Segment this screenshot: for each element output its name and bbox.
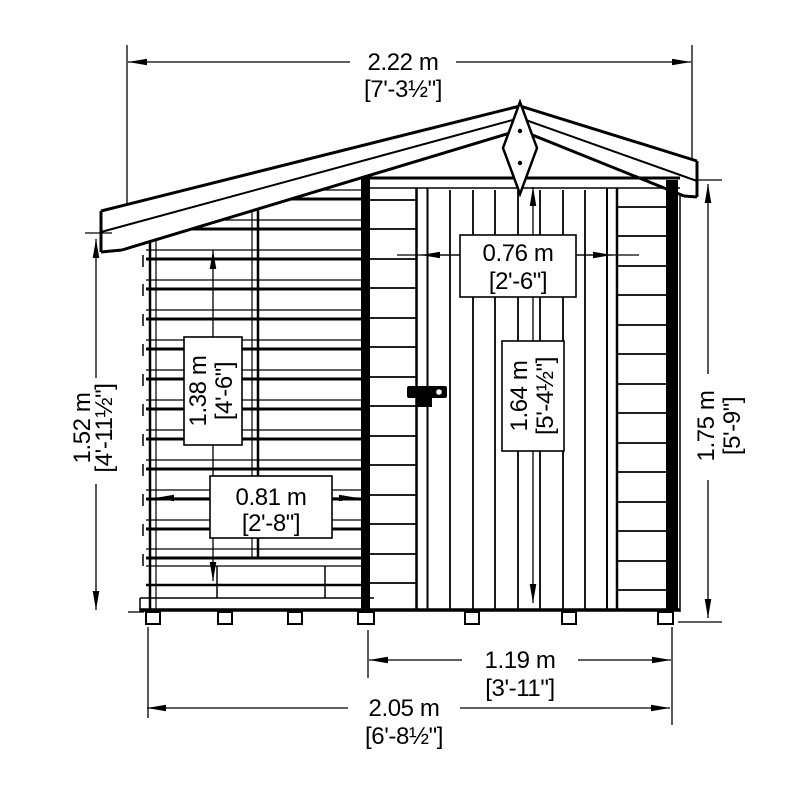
label-front-width-imperial: [3'-11"] (485, 675, 555, 702)
label-left-opening-height-metric: 1.38 m (185, 356, 212, 427)
label-left-opening-height-imperial: [4'-6"] (211, 362, 238, 420)
shed-technical-drawing: 2.22 m [7'-3½"] 1.52 m [4'-11½"] 1.38 m … (0, 0, 800, 800)
label-front-width-metric: 1.19 m (485, 647, 556, 674)
label-base-width-imperial: [6'-8½"] (365, 723, 443, 750)
label-base-width-metric: 2.05 m (369, 695, 440, 722)
label-overall-width-imperial: [7'-3½"] (364, 76, 442, 103)
label-door-width-imperial: [2'-6"] (489, 268, 547, 295)
label-right-height-metric: 1.75 m (693, 391, 720, 462)
label-door-height-metric: 1.64 m (506, 361, 533, 432)
label-left-opening-width-metric: 0.81 m (236, 484, 307, 511)
wall-junction-post (361, 178, 370, 612)
label-left-opening-width-imperial: [2'-8"] (242, 510, 300, 537)
label-door-height-imperial: [5'-4½"] (532, 357, 559, 435)
label-overall-width-metric: 2.22 m (368, 49, 439, 76)
right-corner-trim (666, 180, 678, 611)
label-left-height-imperial: [4'-11½"] (91, 383, 118, 472)
label-door-width-metric: 0.76 m (483, 240, 554, 267)
label-right-height-imperial: [5'-9"] (719, 397, 746, 455)
